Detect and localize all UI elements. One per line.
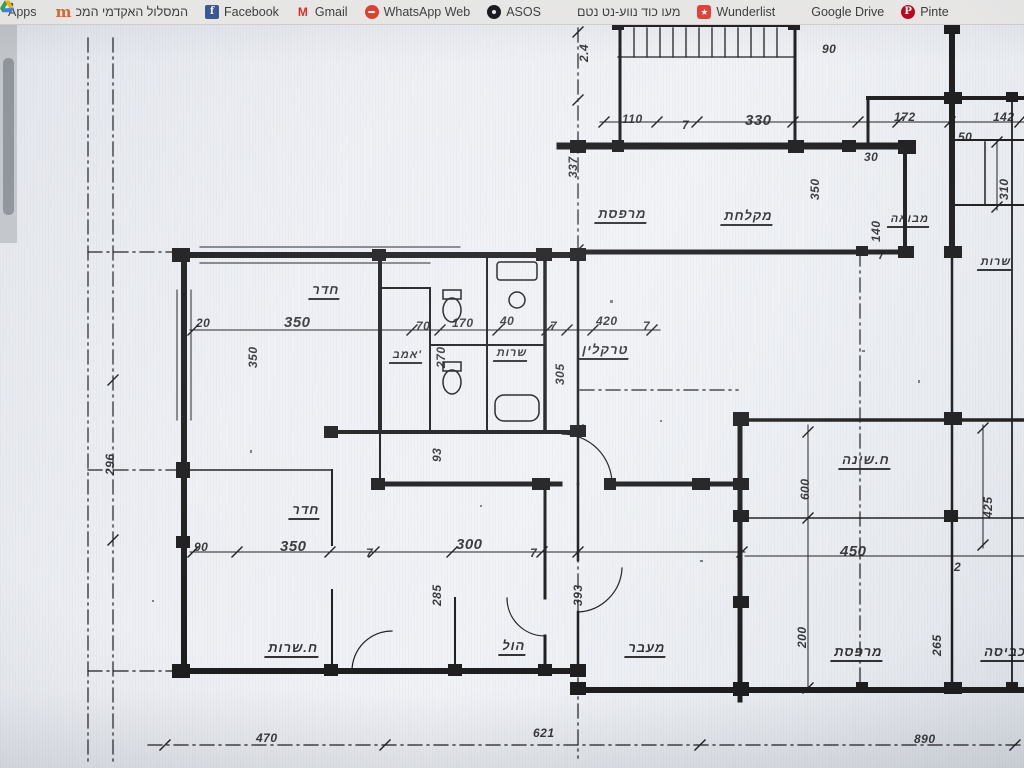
asos-icon [487,5,501,19]
bookmark-item-gmail[interactable]: M Gmail [296,5,348,19]
bookmark-item-asos[interactable]: ASOS [487,5,541,19]
bookmark-item-google-drive[interactable]: Google Drive [792,5,884,19]
gmail-icon: M [296,5,310,19]
scrollbar-thumb[interactable] [3,58,14,215]
pinterest-icon: P [901,5,915,19]
bookmark-item-pinterest[interactable]: P Pinte [901,5,949,19]
bookmark-item-facebook[interactable]: f Facebook [205,5,279,19]
dots-icon [558,5,572,19]
whatsapp-icon [365,5,379,19]
bookmarks-bar: Apps m המסלול האקדמי המכ f Facebook M Gm… [0,0,1024,25]
bookmark-item-college[interactable]: m המסלול האקדמי המכ [57,5,189,19]
scrollbar-track[interactable] [0,25,17,243]
facebook-icon: f [205,5,219,19]
bookmark-item-hebrew-site[interactable]: מעו כוד נווע-נט נטם [558,5,680,19]
bookmark-item-wunderlist[interactable]: ★ Wunderlist [697,5,775,19]
wunderlist-icon: ★ [697,5,711,19]
college-icon: m [57,5,71,19]
google-drive-icon [792,5,806,19]
floorplan-drawing [0,0,1024,768]
bookmark-item-whatsapp[interactable]: WhatsApp Web [365,5,471,19]
